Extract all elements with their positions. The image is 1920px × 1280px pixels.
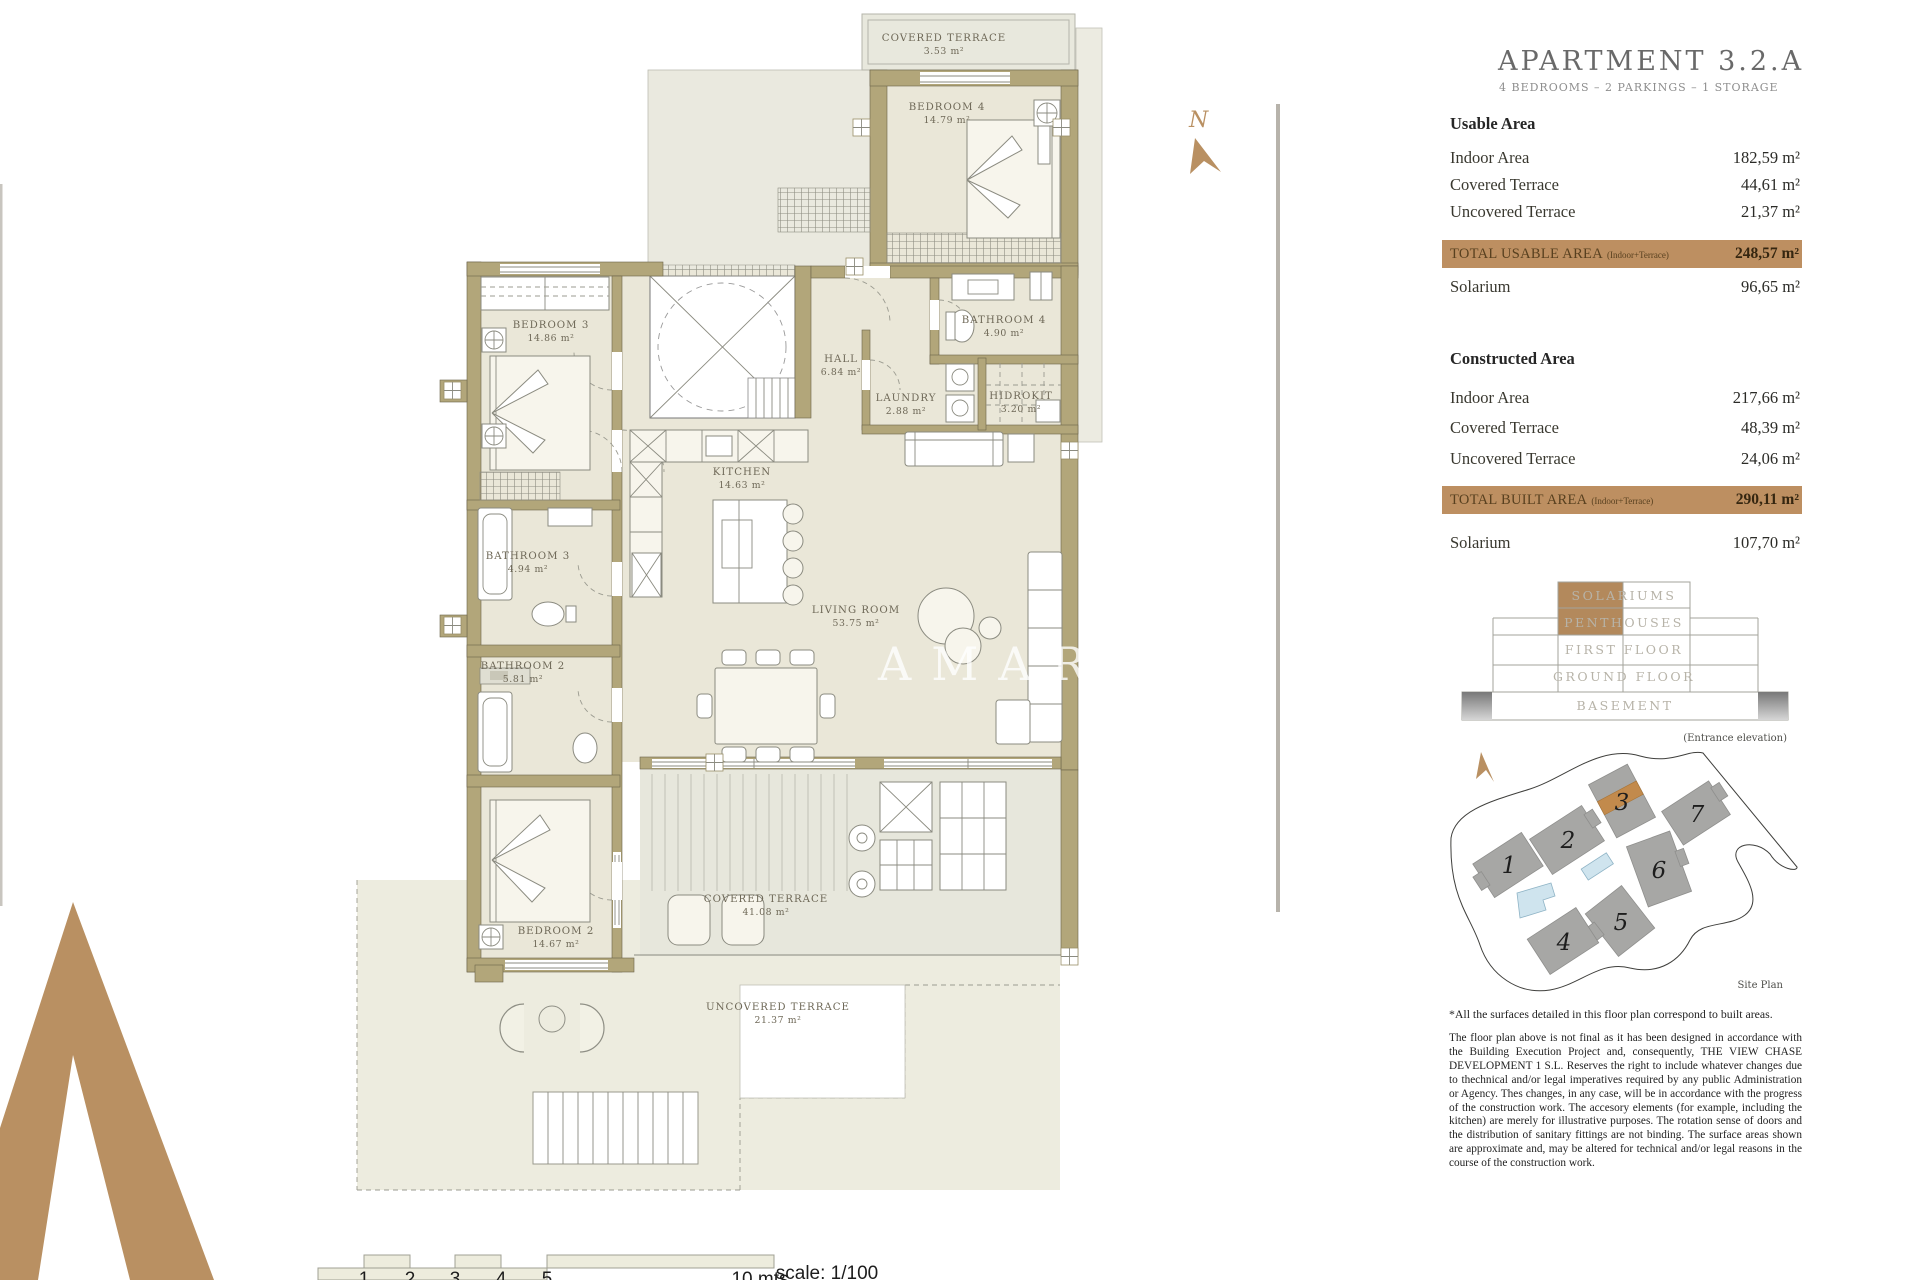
svg-text:4.90 m²: 4.90 m²	[984, 328, 1024, 339]
room-label: BATHROOM 2	[481, 661, 566, 672]
floorplan-sheet: { "header": { "title": "APARTMENT 3.2.A"…	[0, 0, 1920, 1280]
scale-ratio-label: scale: 1/100	[776, 1263, 878, 1280]
divider-line	[1276, 104, 1280, 912]
table-row: Covered Terrace48,39 m²	[1450, 418, 1800, 438]
room-label: BEDROOM 4	[909, 102, 986, 113]
solarium-row: Solarium96,65 m²	[1450, 277, 1800, 297]
room-label: COVERED TERRACE	[882, 33, 1006, 44]
room-label: BATHROOM 4	[962, 315, 1047, 326]
svg-text:53.75 m²: 53.75 m²	[833, 618, 880, 629]
svg-text:14.67 m²: 14.67 m²	[533, 939, 580, 950]
room-label: BEDROOM 3	[513, 320, 590, 331]
svg-text:14.79 m²: 14.79 m²	[924, 115, 971, 126]
scale-bar: 1 2 3 4 5 10 mts scale: 1/100	[318, 1255, 878, 1280]
svg-text:14.63 m²: 14.63 m²	[719, 480, 766, 491]
room-label: KITCHEN	[713, 467, 771, 478]
room-label: COVERED TERRACE	[704, 894, 828, 905]
total-built-row: TOTAL BUILT AREA (Indoor+Terrace) 290,11…	[1442, 486, 1802, 514]
svg-text:2.88 m²: 2.88 m²	[886, 406, 926, 417]
bed-bedroom2	[490, 800, 590, 922]
table-row: Indoor Area182,59 m²	[1450, 148, 1800, 168]
room-label: LIVING ROOM	[812, 605, 900, 616]
footnote: *All the surfaces detailed in this floor…	[1449, 1007, 1802, 1022]
brand-watermark: AMARU	[877, 637, 1165, 691]
scale-tick: 5	[542, 1269, 553, 1280]
stairs-inside-shaft	[748, 378, 795, 418]
bed-bedroom3	[490, 356, 590, 470]
constructed-area-heading: Constructed Area	[1450, 349, 1575, 369]
svg-text:5.81 m²: 5.81 m²	[503, 674, 543, 685]
brand-chevron-logo	[0, 902, 214, 1280]
svg-text:4.94 m²: 4.94 m²	[508, 564, 548, 575]
table-row: Uncovered Terrace21,37 m²	[1450, 202, 1800, 222]
svg-text:14.86 m²: 14.86 m²	[528, 333, 575, 344]
room-label: HIDROKIT	[989, 391, 1053, 402]
page-subtitle: 4 BEDROOMS – 2 PARKINGS – 1 STORAGE	[1499, 81, 1808, 94]
room-label: BATHROOM 3	[486, 551, 571, 562]
floor-plan: COVERED TERRACE 3.53 m² BEDROOM 4 14.79 …	[357, 14, 1165, 1190]
dining-table	[715, 668, 817, 744]
svg-text:6.84 m²: 6.84 m²	[821, 367, 861, 378]
solarium-row: Solarium107,70 m²	[1450, 533, 1800, 553]
room-label: UNCOVERED TERRACE	[706, 1002, 850, 1013]
page-edge-line	[0, 184, 3, 906]
north-arrow-icon: N	[1188, 108, 1221, 174]
exterior-stairs	[533, 1092, 698, 1164]
svg-text:21.37 m²: 21.37 m²	[755, 1015, 802, 1026]
usable-area-heading: Usable Area	[1450, 114, 1535, 134]
side-slab	[1076, 28, 1102, 442]
room-label: HALL	[824, 354, 858, 365]
svg-text:3.53 m²: 3.53 m²	[924, 46, 964, 57]
page-title: APARTMENT 3.2.A	[1498, 46, 1808, 77]
table-row: Covered Terrace44,61 m²	[1450, 175, 1800, 195]
scale-tick: 4	[496, 1269, 507, 1280]
scale-tick: 3	[450, 1269, 461, 1280]
title-block: APARTMENT 3.2.A 4 BEDROOMS – 2 PARKINGS …	[1498, 46, 1808, 94]
info-panel: APARTMENT 3.2.A 4 BEDROOMS – 2 PARKINGS …	[1440, 0, 1802, 1280]
room-label: LAUNDRY	[876, 393, 937, 404]
roof-overhang	[648, 70, 872, 270]
bed-bedroom4	[967, 120, 1060, 238]
room-label: BEDROOM 2	[518, 926, 595, 937]
svg-text:N: N	[1188, 108, 1209, 133]
legal-disclaimer: The floor plan above is not final as it …	[1449, 1032, 1802, 1171]
svg-text:41.08 m²: 41.08 m²	[743, 907, 790, 918]
table-row: Indoor Area217,66 m²	[1450, 388, 1800, 408]
scale-tick: 1	[359, 1269, 370, 1280]
table-row: Uncovered Terrace24,06 m²	[1450, 449, 1800, 469]
stair-void	[650, 265, 795, 418]
total-usable-row: TOTAL USABLE AREA (Indoor+Terrace) 248,5…	[1442, 240, 1802, 268]
scale-tick: 2	[405, 1269, 416, 1280]
svg-text:3.20 m²: 3.20 m²	[1001, 404, 1041, 415]
